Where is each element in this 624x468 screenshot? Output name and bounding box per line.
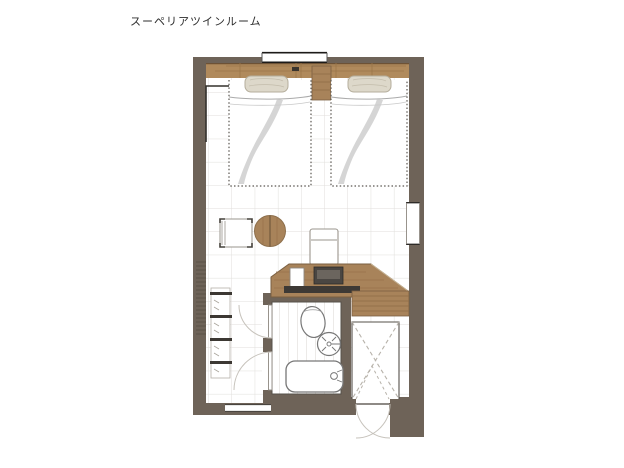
luggage-bench [352,291,409,316]
window-icon [262,52,327,63]
bed-1 [229,76,311,186]
tv-bar [284,286,360,293]
bathtub-icon [286,361,343,392]
sink-icon [318,333,342,356]
bathroom-door-leaf [269,305,273,338]
open-shelves [210,288,232,378]
wall-panel-mirror [406,202,420,245]
side-chair [220,219,252,247]
bottom-wall-niche [225,404,271,412]
floorplan-drawing [0,0,624,468]
memo-card [290,268,304,287]
bed-2 [331,76,407,186]
desk-chair [310,229,338,265]
floorplan-page: スーペリアツインルーム [0,0,624,468]
washroom-door-leaf [269,352,273,390]
round-table [255,216,286,247]
tv-screen [317,270,340,279]
nightstand [312,66,331,100]
closet [352,322,399,399]
